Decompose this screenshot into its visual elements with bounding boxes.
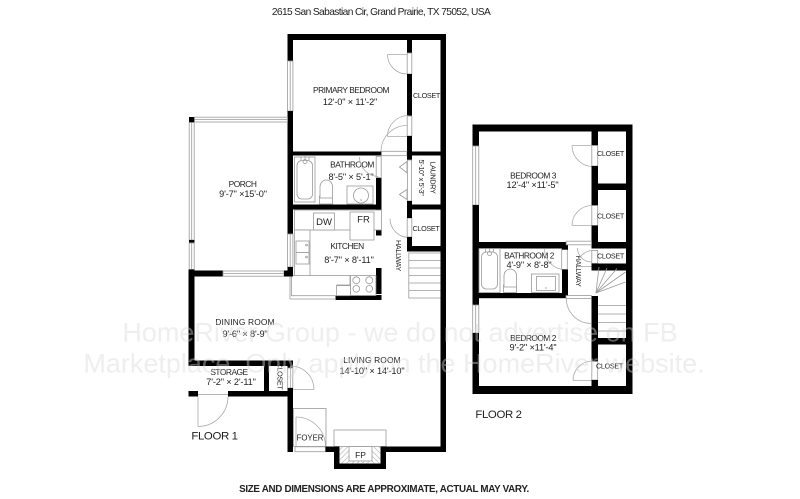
svg-text:LAUNDRY: LAUNDRY [429, 161, 438, 194]
svg-text:BATHROOM: BATHROOM [330, 160, 374, 170]
svg-text:SIZE AND DIMENSIONS ARE APPROX: SIZE AND DIMENSIONS ARE APPROXIMATE, ACT… [239, 484, 529, 495]
svg-text:HomeRiver Group - we do not ad: HomeRiver Group - we do not advertise on… [122, 318, 677, 348]
svg-text:FR: FR [357, 215, 370, 226]
svg-text:9'-7" ×15'-0": 9'-7" ×15'-0" [219, 189, 267, 199]
svg-text:KITCHEN: KITCHEN [330, 241, 364, 251]
svg-text:4'-9" × 8'-8": 4'-9" × 8'-8" [506, 260, 551, 270]
svg-text:8'-7" × 8'-11": 8'-7" × 8'-11" [324, 255, 373, 265]
svg-text:FLOOR 1: FLOOR 1 [191, 431, 237, 443]
svg-text:12'-0" × 11'-2": 12'-0" × 11'-2" [323, 97, 377, 107]
svg-text:8'-5" × 5'-1": 8'-5" × 5'-1" [328, 172, 373, 182]
svg-text:DW: DW [316, 217, 332, 228]
svg-text:PORCH: PORCH [229, 179, 257, 189]
svg-text:FP: FP [355, 450, 366, 460]
svg-text:CLOSET: CLOSET [597, 212, 625, 221]
svg-text:HALLWAY: HALLWAY [394, 240, 403, 271]
svg-text:12'-4" ×11'-5": 12'-4" ×11'-5" [507, 180, 559, 190]
svg-text:CLOSET: CLOSET [597, 149, 625, 158]
svg-text:BEDROOM 3: BEDROOM 3 [510, 171, 557, 181]
svg-text:Marketplace. Only apply on the: Marketplace. Only apply on the HomeRiver… [83, 349, 704, 379]
svg-text:CLOSET: CLOSET [597, 252, 625, 261]
svg-text:CLOSET: CLOSET [413, 224, 441, 233]
svg-text:FOYER: FOYER [297, 434, 324, 443]
svg-text:CLOSET: CLOSET [413, 91, 441, 100]
svg-text:7'-2" × 2'-11": 7'-2" × 2'-11" [206, 377, 255, 387]
svg-text:2615 San Sabastian Cir, Grand: 2615 San Sabastian Cir, Grand Prairie, T… [272, 7, 491, 18]
svg-text:PRIMARY BEDROOM: PRIMARY BEDROOM [313, 85, 389, 95]
svg-text:FLOOR 2: FLOOR 2 [475, 409, 521, 421]
svg-text:5'-10" x 5'-3": 5'-10" x 5'-3" [417, 159, 426, 196]
